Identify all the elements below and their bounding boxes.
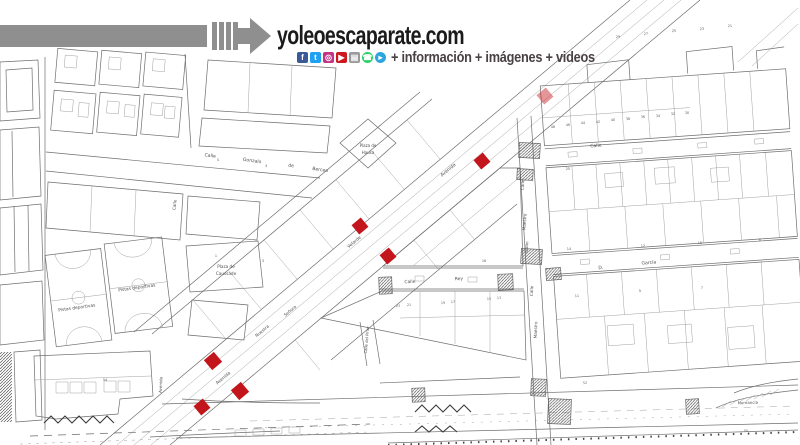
street-label: D. [598, 265, 604, 271]
telegram-icon[interactable]: ▸ [375, 52, 386, 63]
crosswalk-hatch [531, 379, 547, 397]
header-stripe [226, 22, 231, 50]
house-number: 1 [215, 254, 217, 258]
social-icon-row: ft◎▶▤☎▸ [297, 52, 386, 63]
street-label: Berceo [312, 166, 329, 174]
page: { "header": { "title": "yoleoescaparate.… [0, 0, 800, 445]
facebook-icon[interactable]: f [297, 52, 308, 63]
street-label: Plaza de [360, 143, 377, 148]
street-label: Gonzalo [243, 157, 262, 166]
street-label: Calle [172, 199, 178, 210]
street-label: Odón [524, 241, 530, 253]
house-number: 7 [701, 286, 703, 290]
street-label: Calle [204, 152, 216, 160]
street-label: Maestro [521, 213, 527, 231]
house-number: 11 [575, 294, 580, 298]
house-number: 36 [641, 115, 646, 119]
crosswalk-hatch [379, 277, 393, 294]
house-number: 5 [217, 158, 220, 162]
youtube-icon[interactable]: ▶ [336, 52, 347, 63]
street-label: García [641, 258, 657, 266]
crosswalk-hatch [412, 388, 425, 402]
site-header: yoleoescaparate.com ft◎▶▤☎▸ + informació… [0, 0, 800, 72]
poi-marker[interactable] [380, 248, 397, 265]
house-number: 21 [407, 303, 411, 307]
house-number: 25 [566, 167, 571, 171]
arrow-icon [237, 28, 250, 44]
street-label: Señora [283, 304, 298, 318]
poi-markers-layer [194, 88, 554, 416]
street-label: Hausa [362, 150, 375, 155]
street-label: Maestro [533, 321, 539, 338]
street-label: Calle [520, 179, 526, 190]
twitter-icon[interactable]: t [310, 52, 321, 63]
house-number: 54 [103, 378, 107, 382]
street-label: Calle del Pinar [363, 326, 370, 354]
house-number: 3 [265, 164, 268, 168]
gallery-icon[interactable]: ▤ [349, 52, 360, 63]
house-number: 42 [596, 120, 601, 124]
house-number: 3 [262, 259, 264, 263]
house-numbers-layer: 4846444240383634323025141210811972321191… [103, 24, 761, 433]
street-label: de [288, 163, 295, 170]
instagram-icon[interactable]: ◎ [323, 52, 334, 63]
street-label: Calle [404, 279, 415, 286]
poi-marker[interactable] [474, 153, 491, 170]
crosswalk-hatch [498, 274, 514, 291]
site-title[interactable]: yoleoescaparate.com [277, 20, 464, 51]
whatsapp-icon[interactable]: ☎ [362, 52, 373, 63]
street-label: Rey [455, 276, 464, 282]
crosswalk-hatch [546, 267, 562, 280]
house-number: 13 [497, 296, 501, 300]
house-number: 12 [641, 244, 646, 248]
house-number: 44 [581, 121, 586, 125]
street-label: Numancia [738, 400, 759, 406]
house-number: 10 [698, 241, 703, 245]
house-number: 52 [583, 381, 587, 385]
crosswalk-hatch [517, 169, 534, 181]
street-label: Calle [529, 285, 534, 296]
street-label: Plaza de [217, 264, 235, 269]
crosswalk-hatch [519, 142, 541, 158]
house-number: 46 [566, 123, 571, 127]
house-number: 34 [656, 114, 661, 118]
arrow-icon [250, 18, 271, 54]
house-number: 38 [626, 117, 631, 121]
street-label: Pistas deportivas [118, 282, 157, 293]
poi-marker[interactable] [537, 88, 554, 105]
street-labels-layer: CalleGonzalodeBerceoPlaza deHausaCallePl… [58, 143, 759, 406]
house-number: 40 [611, 118, 616, 122]
house-number: 17 [451, 300, 455, 304]
poi-marker[interactable] [231, 382, 249, 400]
house-number: 9 [639, 289, 641, 293]
crosswalk-hatch [548, 399, 572, 425]
header-bar [0, 25, 207, 47]
street-label: Avenida [158, 376, 164, 393]
house-number: 23 [396, 304, 400, 308]
house-number: 14 [567, 247, 572, 251]
house-number: 15 [487, 297, 491, 301]
house-number: 55 [744, 429, 748, 433]
house-number: 48 [551, 125, 556, 129]
poi-marker[interactable] [204, 352, 222, 370]
house-number: 16 [482, 259, 486, 263]
house-number: 8 [759, 238, 761, 242]
house-number: 19 [441, 301, 445, 305]
header-stripe [212, 22, 217, 50]
house-number: 30 [685, 111, 690, 115]
street-label: Caussade [216, 271, 237, 276]
site-tagline: + información + imágenes + videos [391, 49, 595, 66]
street-label: Velarde [346, 234, 363, 249]
header-stripe [219, 22, 224, 50]
house-number: 32 [671, 112, 676, 116]
street-label: Nuestra [254, 323, 270, 338]
crosswalk-hatch [686, 399, 700, 415]
street-label: Avenida [215, 370, 233, 386]
street-label: Calle [590, 143, 602, 150]
